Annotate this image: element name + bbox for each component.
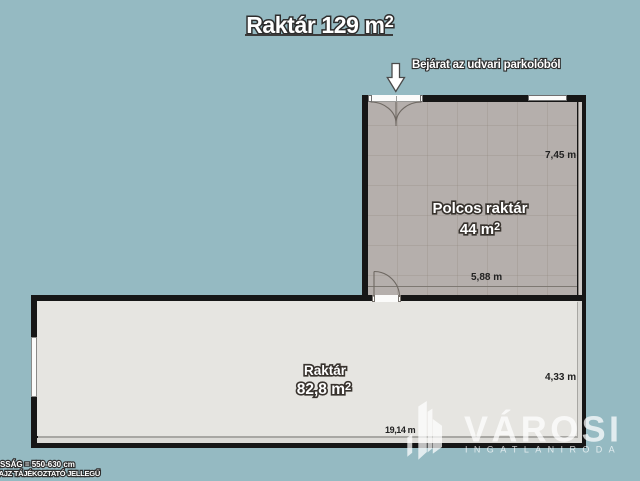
svg-text:VÁROSI: VÁROSI — [464, 409, 622, 450]
svg-text:INGATLANIRODA: INGATLANIRODA — [465, 445, 621, 455]
